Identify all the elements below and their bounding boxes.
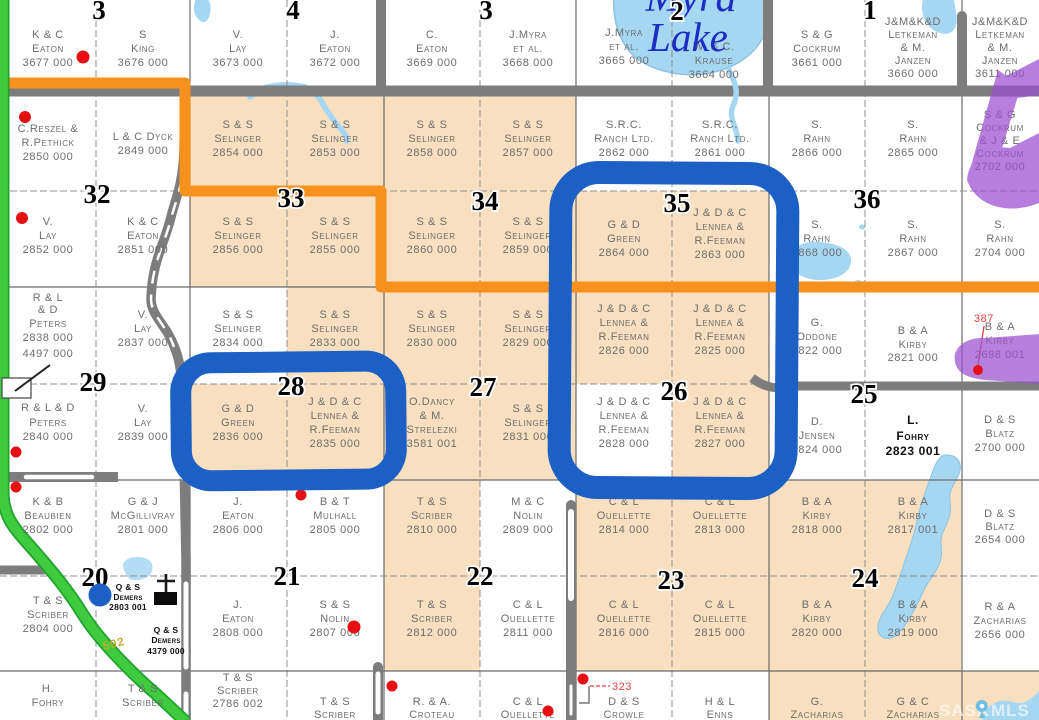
svg-text:1: 1 xyxy=(863,0,877,25)
svg-text:2: 2 xyxy=(670,0,684,26)
svg-text:387: 387 xyxy=(974,313,994,325)
svg-text:32: 32 xyxy=(84,179,111,209)
svg-text:34: 34 xyxy=(472,186,499,216)
svg-text:23: 23 xyxy=(658,565,685,595)
svg-text:24: 24 xyxy=(852,563,879,593)
svg-text:35: 35 xyxy=(664,188,691,218)
svg-text:3: 3 xyxy=(479,0,493,25)
svg-text:28: 28 xyxy=(278,371,305,401)
svg-text:26: 26 xyxy=(661,376,688,406)
svg-text:36: 36 xyxy=(854,184,881,214)
svg-text:C.Reszel &R.Pethick2850 000: C.Reszel &R.Pethick2850 000 xyxy=(18,123,79,163)
svg-text:33: 33 xyxy=(278,183,305,213)
svg-text:Lake: Lake xyxy=(647,14,728,60)
svg-text:3: 3 xyxy=(92,0,106,25)
svg-text:29: 29 xyxy=(80,367,107,397)
svg-text:22: 22 xyxy=(467,561,494,591)
svg-text:25: 25 xyxy=(851,379,878,409)
svg-text:27: 27 xyxy=(470,372,497,402)
svg-text:4: 4 xyxy=(286,0,300,25)
svg-text:323: 323 xyxy=(612,681,632,693)
svg-text:MLS: MLS xyxy=(991,701,1030,720)
svg-text:21: 21 xyxy=(274,561,301,591)
